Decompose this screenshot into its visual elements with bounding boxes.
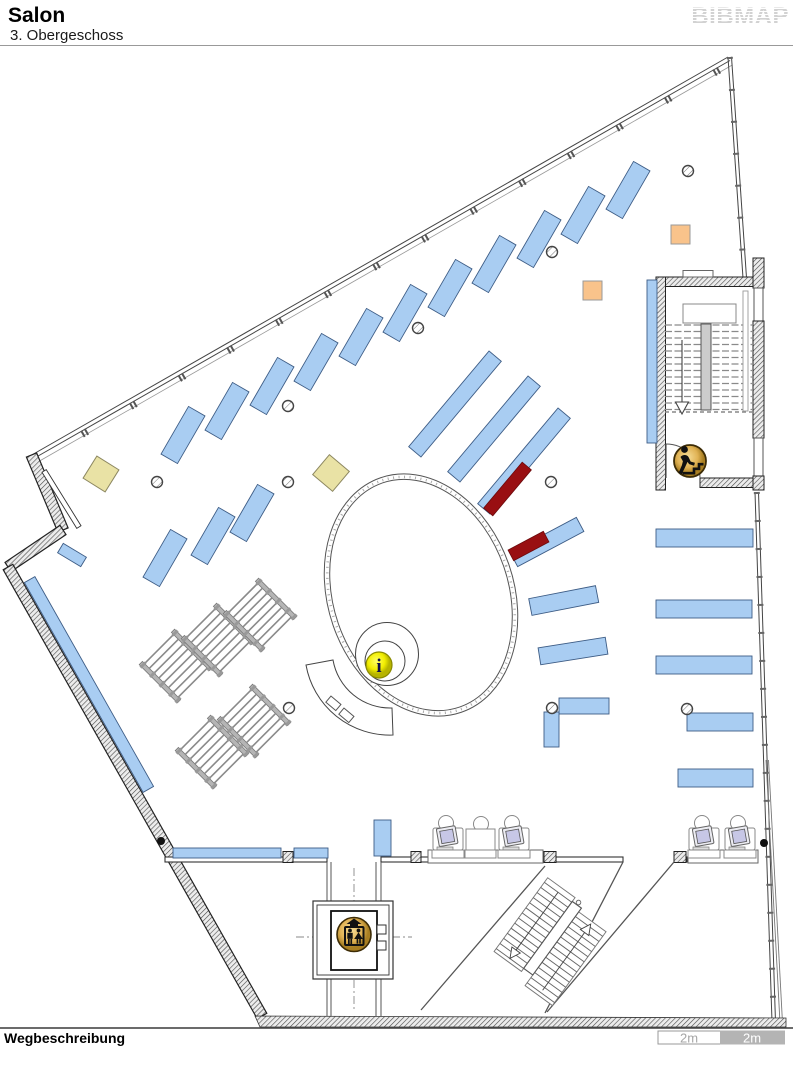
svg-text:3. Obergeschoss: 3. Obergeschoss: [10, 27, 123, 44]
svg-text:BIBMAP: BIBMAP: [691, 3, 789, 30]
svg-text:i: i: [376, 656, 381, 677]
svg-text:Wegbeschreibung: Wegbeschreibung: [4, 1030, 125, 1046]
svg-text:Salon: Salon: [8, 4, 65, 27]
svg-text:2m: 2m: [743, 1031, 761, 1046]
svg-text:2m: 2m: [680, 1031, 698, 1046]
